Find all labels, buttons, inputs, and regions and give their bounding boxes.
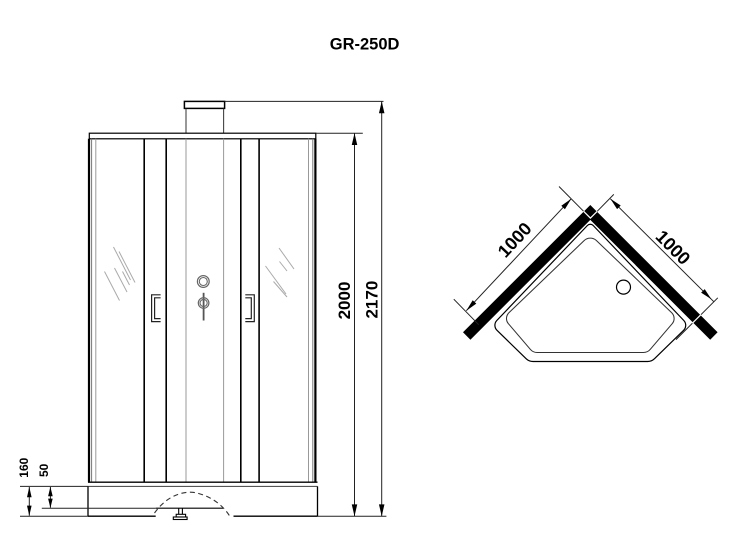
svg-text:50: 50	[37, 463, 51, 477]
svg-text:2170: 2170	[363, 281, 382, 319]
svg-text:1000: 1000	[494, 219, 536, 262]
svg-text:160: 160	[17, 457, 31, 477]
svg-text:2000: 2000	[335, 282, 354, 320]
svg-text:GR-250D: GR-250D	[330, 36, 400, 54]
svg-text:1000: 1000	[652, 226, 694, 268]
